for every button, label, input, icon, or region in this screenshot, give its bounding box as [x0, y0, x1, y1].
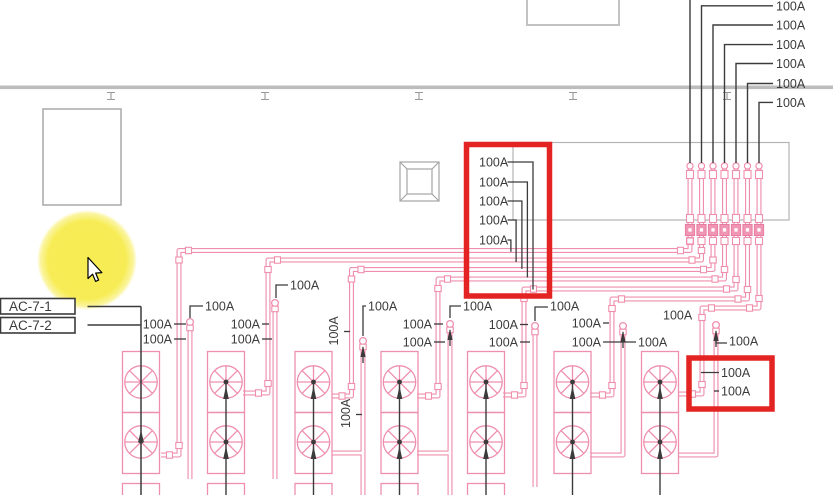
svg-text:100A: 100A: [403, 336, 433, 350]
svg-text:100A: 100A: [638, 336, 668, 350]
svg-text:100A: 100A: [721, 385, 751, 399]
svg-text:AC-7-1: AC-7-1: [9, 299, 52, 314]
svg-text:100A: 100A: [231, 333, 261, 347]
svg-text:100A: 100A: [489, 336, 519, 350]
svg-text:100A: 100A: [479, 156, 509, 170]
svg-text:100A: 100A: [368, 300, 398, 314]
svg-text:100A: 100A: [776, 0, 806, 13]
svg-text:100A: 100A: [663, 309, 693, 323]
svg-text:100A: 100A: [479, 214, 509, 228]
svg-text:100A: 100A: [463, 300, 493, 314]
svg-text:100A: 100A: [776, 77, 806, 91]
svg-text:100A: 100A: [776, 57, 806, 71]
svg-text:100A: 100A: [143, 318, 173, 332]
svg-text:100A: 100A: [550, 300, 580, 314]
svg-text:100A: 100A: [776, 38, 806, 52]
svg-text:AC-7-2: AC-7-2: [9, 318, 52, 333]
svg-text:100A: 100A: [776, 19, 806, 33]
svg-text:100A: 100A: [205, 300, 235, 314]
svg-text:100A: 100A: [572, 317, 602, 331]
svg-text:100A: 100A: [479, 234, 509, 248]
svg-text:100A: 100A: [290, 279, 320, 293]
svg-text:100A: 100A: [339, 398, 353, 428]
svg-text:100A: 100A: [231, 318, 261, 332]
svg-text:100A: 100A: [479, 176, 509, 190]
svg-text:100A: 100A: [776, 96, 806, 110]
svg-text:100A: 100A: [572, 336, 602, 350]
svg-text:100A: 100A: [721, 366, 751, 380]
svg-text:100A: 100A: [403, 318, 433, 332]
svg-text:100A: 100A: [143, 333, 173, 347]
svg-text:100A: 100A: [327, 316, 341, 346]
svg-text:100A: 100A: [729, 335, 759, 349]
svg-text:100A: 100A: [489, 318, 519, 332]
svg-text:100A: 100A: [479, 195, 509, 209]
